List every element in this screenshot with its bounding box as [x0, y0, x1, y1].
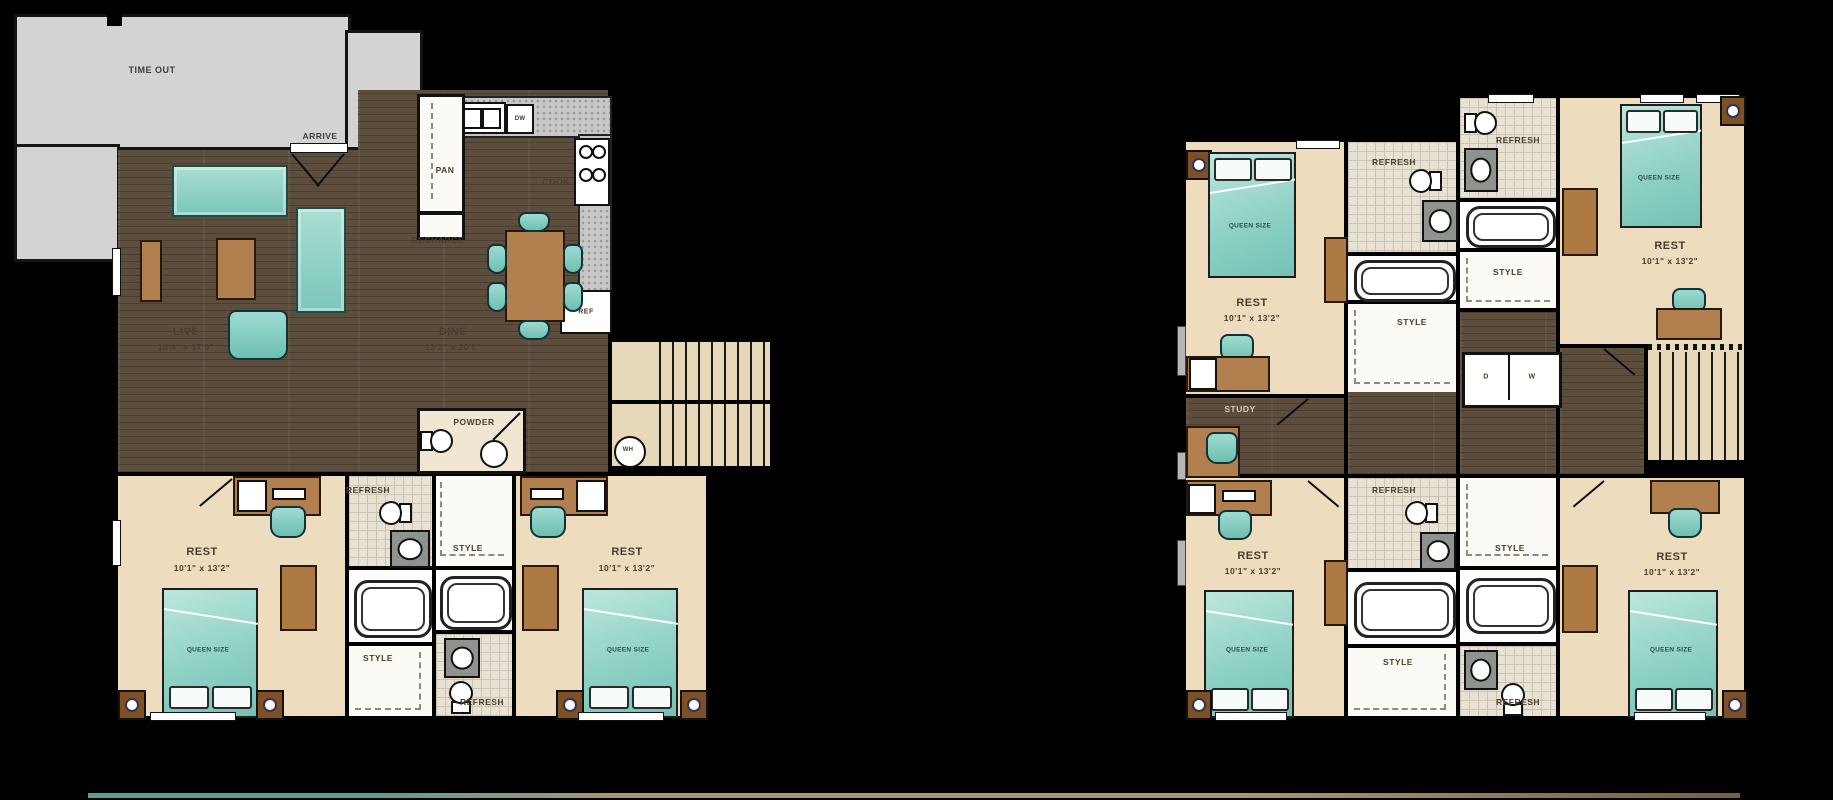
bed-queen — [1620, 104, 1702, 228]
toilet — [1464, 110, 1498, 136]
window — [1177, 540, 1186, 586]
dining-table — [505, 230, 565, 322]
dryer-label: D — [1483, 374, 1489, 381]
window — [1296, 140, 1340, 149]
dresser — [1562, 188, 1598, 256]
closet-bottom-label: STYLE — [363, 653, 393, 663]
nightstand — [1720, 96, 1746, 126]
pantry-label: PAN — [436, 165, 455, 175]
bath-top-label: REFRESH — [346, 485, 390, 495]
bed-size-label: QUEEN SIZE — [607, 647, 649, 654]
patio-floor-left — [14, 144, 120, 262]
closet-tl-label: STYLE — [1397, 317, 1427, 327]
bath-sink — [444, 638, 480, 678]
nightstand — [118, 690, 146, 720]
printer — [1189, 358, 1217, 390]
window — [578, 712, 664, 721]
bed-size-label: QUEEN SIZE — [1650, 647, 1692, 654]
live-room-label: LIVE — [173, 326, 199, 338]
bath-tl-label: REFRESH — [1372, 157, 1416, 167]
window — [1177, 452, 1186, 480]
bed-size-label: QUEEN SIZE — [1226, 647, 1268, 654]
bath-sink — [390, 530, 430, 568]
bedroom-bl-label: REST — [1237, 550, 1268, 562]
window — [1634, 712, 1706, 721]
dine-room-label: DINE — [439, 326, 467, 338]
sofa-chaise — [296, 207, 346, 313]
bath-sink — [1464, 650, 1498, 690]
dresser — [1324, 560, 1348, 626]
laundry-divider — [1508, 354, 1510, 400]
window — [1177, 326, 1186, 376]
pedestal-sink — [480, 440, 508, 468]
desk — [1656, 308, 1722, 340]
nightstand — [1186, 690, 1212, 720]
closet-bl-label: STYLE — [1383, 657, 1413, 667]
dresser — [1324, 237, 1348, 303]
bed-size-label: QUEEN SIZE — [1229, 223, 1271, 230]
sofa — [172, 165, 288, 217]
window — [1488, 94, 1534, 103]
dine-room-dims: 13'2" x 20'5" — [425, 342, 481, 352]
dishwasher-label: DW — [515, 116, 525, 122]
bathtub — [1354, 260, 1456, 302]
desk-chair — [530, 506, 566, 538]
bath-sink — [1464, 148, 1498, 192]
printer — [237, 480, 267, 512]
closet-tr-label: STYLE — [1493, 267, 1523, 277]
staircase — [1648, 352, 1744, 460]
bedroom-left-label: REST — [186, 546, 217, 558]
recharge-label: RECHARGE — [412, 235, 465, 245]
bathtub — [354, 580, 432, 638]
bedroom-tr-dims: 10'1" x 13'2" — [1642, 256, 1698, 266]
stair-divider — [612, 400, 770, 404]
bed-queen — [1628, 590, 1718, 718]
bath-br-label: REFRESH — [1496, 697, 1540, 707]
bedroom-br-dims: 10'1" x 13'2" — [1644, 567, 1700, 577]
patio-notch — [107, 12, 122, 26]
laptop — [1222, 490, 1256, 502]
laptop — [272, 488, 306, 500]
desk-chair — [1218, 510, 1252, 540]
powder-label: POWDER — [453, 417, 494, 427]
patio-floor — [14, 14, 351, 150]
bottom-strip — [88, 793, 1740, 798]
printer — [576, 480, 606, 512]
window — [1640, 94, 1684, 103]
coffee-table — [216, 238, 256, 300]
bed-queen — [1204, 590, 1294, 718]
bath-sink — [1422, 200, 1458, 242]
dishwasher: DW — [506, 104, 534, 134]
closet-top-label: STYLE — [453, 543, 483, 553]
refrigerator-label: REF — [578, 309, 594, 316]
toilet — [1408, 168, 1442, 194]
bath-bottom-label: REFRESH — [460, 697, 504, 707]
hall-floor — [1560, 348, 1644, 474]
stair-railing — [1648, 344, 1744, 350]
bedroom-bl-dims: 10'1" x 13'2" — [1225, 566, 1281, 576]
dining-chair — [563, 282, 583, 312]
toilet — [420, 428, 454, 454]
front-door-threshold — [290, 143, 348, 153]
bed-size-label: QUEEN SIZE — [1638, 175, 1680, 182]
dresser — [1562, 565, 1598, 633]
floor-plan-stage: TIME OUT ARRIVE DW REF COOK PAN RECHARGE… — [0, 0, 1833, 800]
bedroom-left-dims: 10'1" x 13'2" — [174, 563, 230, 573]
laundry-closet — [1462, 352, 1562, 408]
bedroom-right-dims: 10'1" x 13'2" — [599, 563, 655, 573]
tv-console — [140, 240, 162, 302]
staircase-upper-flight — [648, 342, 770, 400]
sink-basin — [482, 108, 501, 129]
arrive-label: ARRIVE — [302, 131, 337, 141]
bath-bl-label: REFRESH — [1372, 485, 1416, 495]
desk-chair — [270, 506, 306, 538]
dining-chair — [563, 244, 583, 274]
desk-chair — [1668, 508, 1702, 538]
dining-chair — [518, 320, 550, 340]
stove — [574, 138, 610, 206]
cook-label: COOK — [542, 177, 570, 187]
window — [150, 712, 236, 721]
staircase-lower-flight — [648, 404, 770, 466]
closet-br-label: STYLE — [1495, 543, 1525, 553]
armchair — [228, 310, 288, 360]
desk-chair — [1206, 432, 1238, 464]
toilet — [1404, 500, 1438, 526]
bath-tr-label: REFRESH — [1496, 135, 1540, 145]
toilet — [378, 500, 412, 526]
sink-basin — [463, 108, 482, 129]
bathtub — [1466, 206, 1556, 248]
washer-label: W — [1528, 374, 1535, 381]
pantry-shelf — [423, 103, 433, 199]
bathtub — [1354, 582, 1456, 638]
kitchen-sink — [458, 102, 506, 134]
bedroom-br-label: REST — [1656, 551, 1687, 563]
window — [112, 248, 121, 296]
bedroom-right-label: REST — [611, 546, 642, 558]
closet-shelving — [1466, 258, 1550, 302]
bedroom-tl-dims: 10'1" x 13'2" — [1224, 313, 1280, 323]
nightstand — [256, 690, 284, 720]
nightstand — [680, 690, 708, 720]
printer — [1188, 484, 1216, 514]
bathtub — [440, 576, 512, 630]
window — [1215, 712, 1287, 721]
bath-sink — [1420, 532, 1456, 570]
bedroom-tl-label: REST — [1236, 297, 1267, 309]
dresser — [522, 565, 559, 631]
patio-label: TIME OUT — [129, 65, 176, 75]
dining-chair — [487, 244, 507, 274]
live-room-dims: 15'4" x 17'9" — [158, 342, 214, 352]
study-label: STUDY — [1224, 404, 1255, 414]
dresser — [280, 565, 317, 631]
bed-size-label: QUEEN SIZE — [187, 647, 229, 654]
laptop — [530, 488, 564, 500]
bathtub — [1466, 578, 1556, 634]
nightstand — [1722, 690, 1748, 720]
pantry-closet — [417, 94, 465, 214]
dining-chair — [487, 282, 507, 312]
dining-chair — [518, 212, 550, 232]
window — [112, 520, 121, 566]
bed-queen — [1208, 152, 1296, 278]
water-heater-label: WH — [623, 447, 633, 453]
bedroom-tr-label: REST — [1654, 240, 1685, 252]
